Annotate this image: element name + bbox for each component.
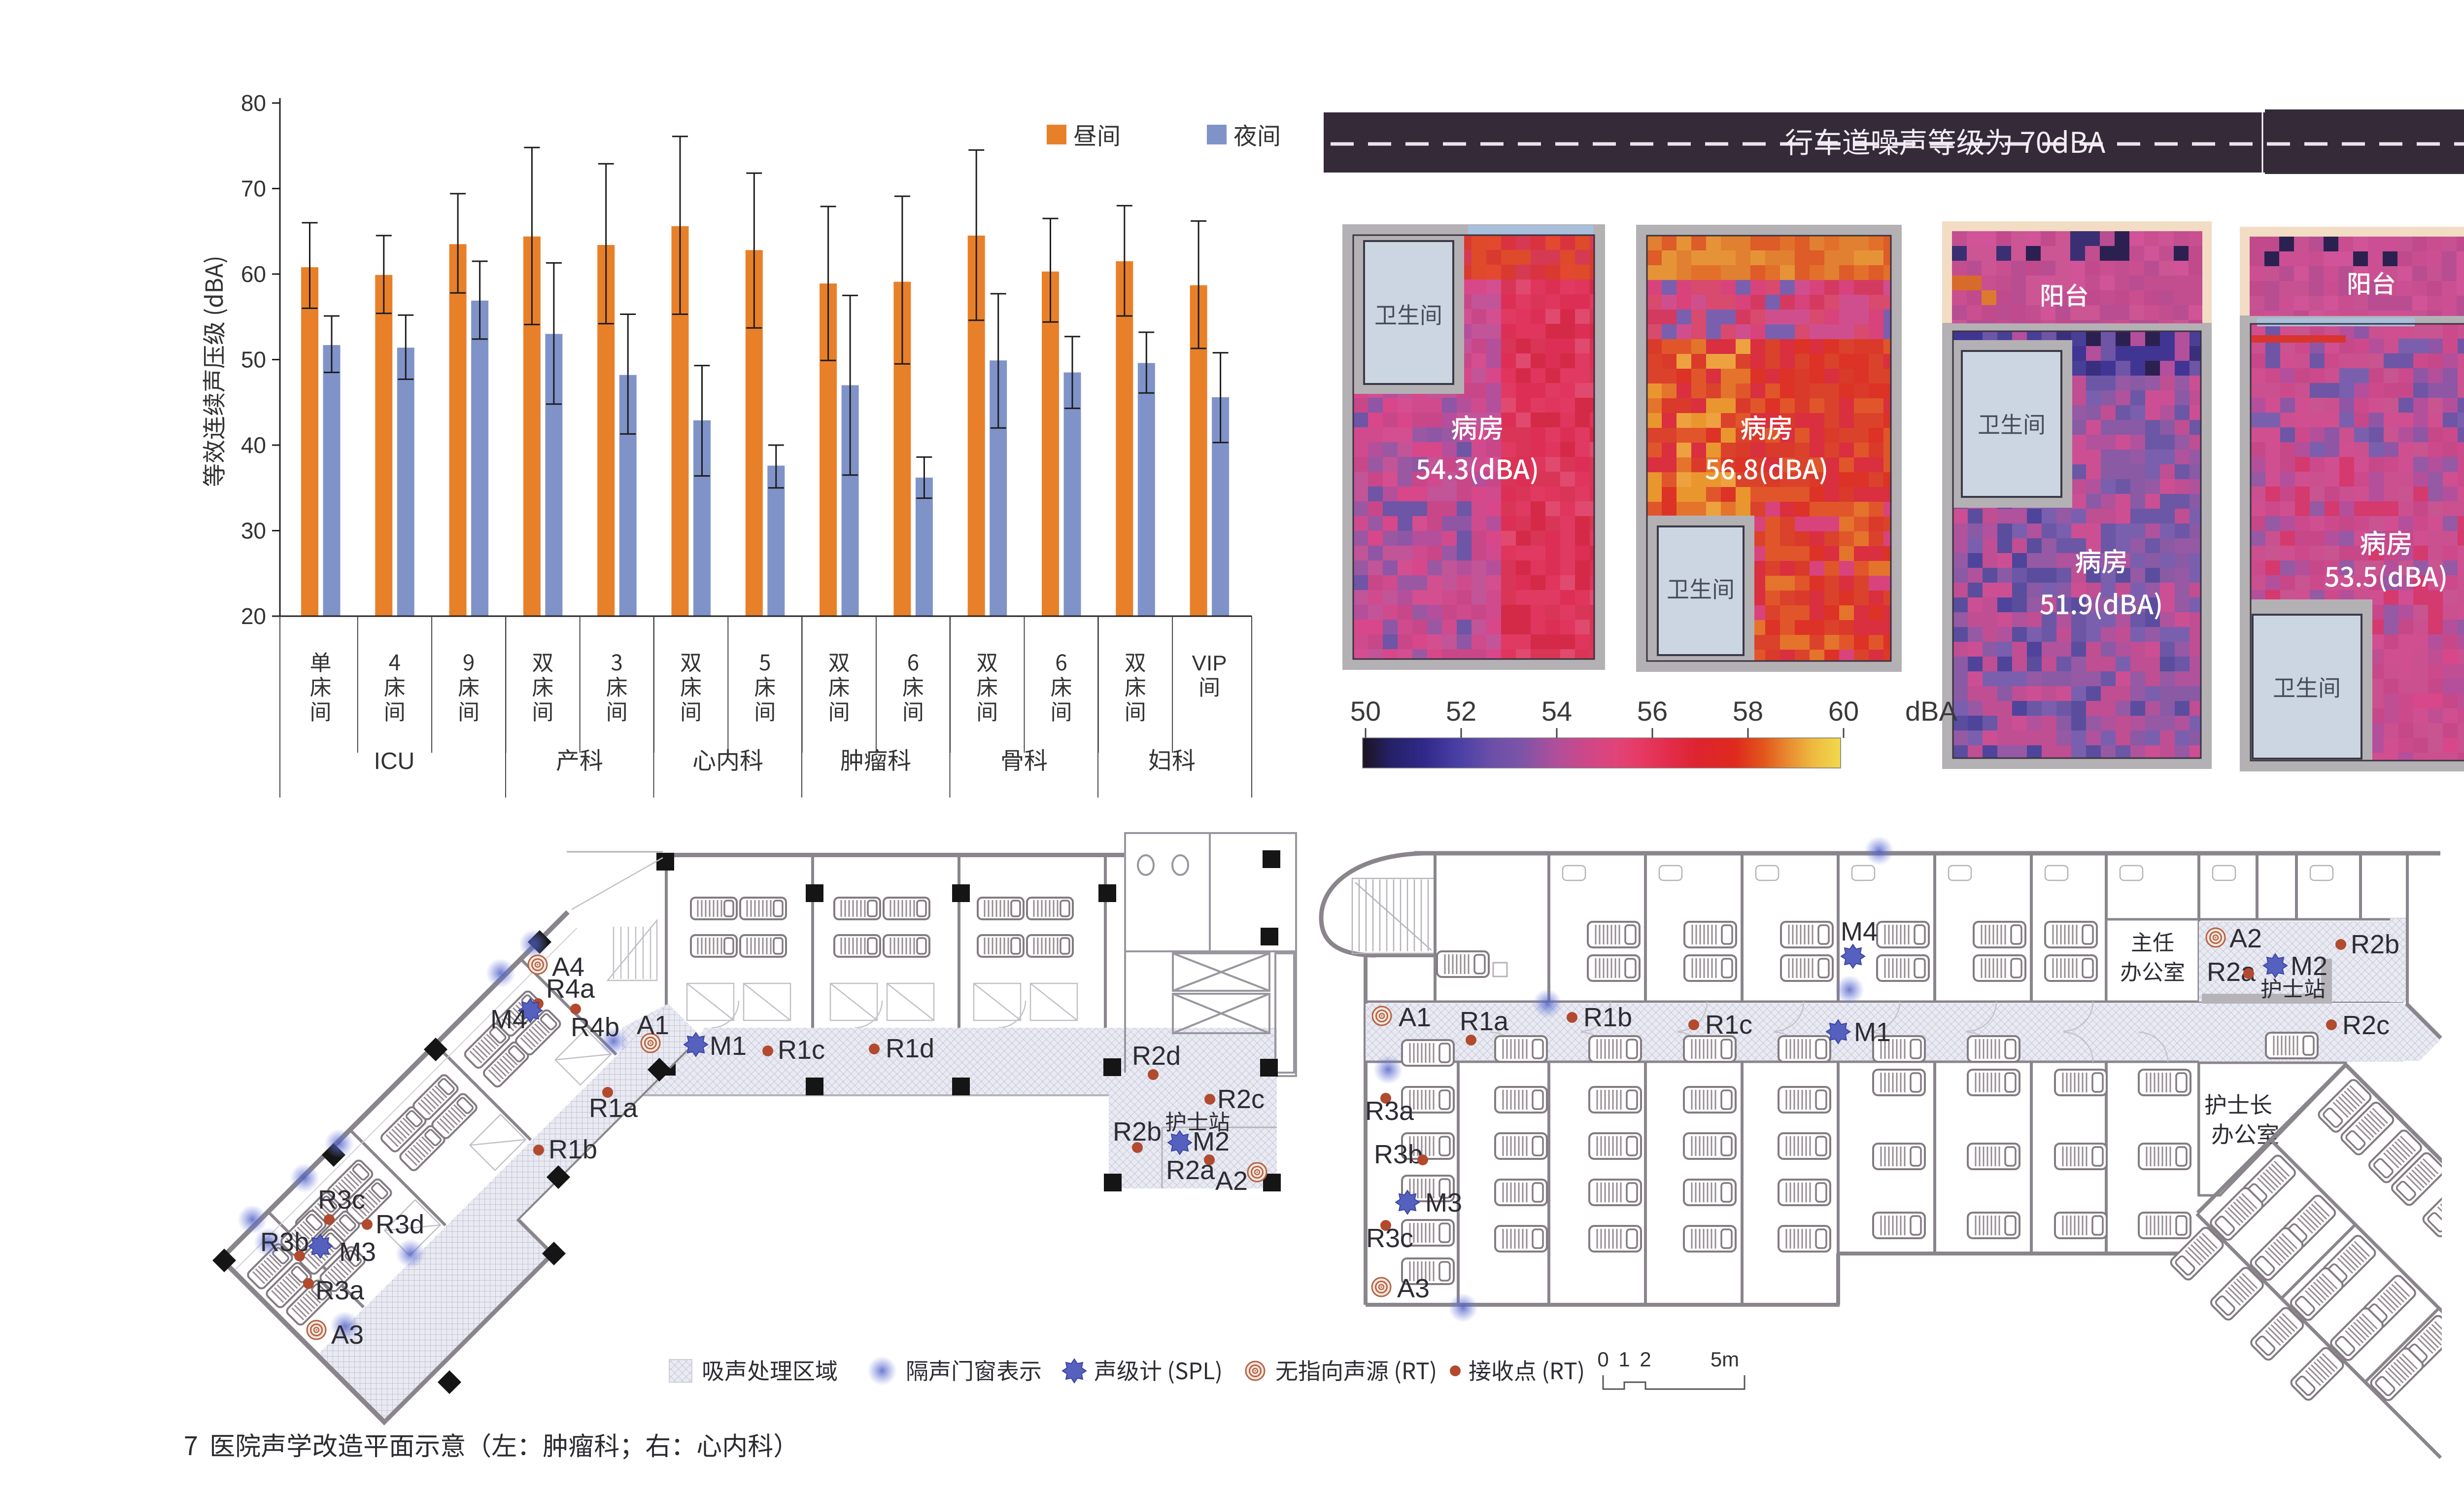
svg-text:dBA: dBA [1905, 696, 1957, 727]
svg-text:A2: A2 [1215, 1166, 1248, 1196]
svg-text:R1c: R1c [1705, 1010, 1752, 1040]
svg-text:80: 80 [241, 90, 266, 116]
svg-text:70: 70 [241, 176, 266, 202]
svg-text:52: 52 [1446, 696, 1476, 727]
svg-text:M3: M3 [339, 1237, 376, 1267]
svg-text:60: 60 [1828, 696, 1859, 727]
svg-text:R3c: R3c [318, 1185, 365, 1215]
svg-text:M2: M2 [1193, 1127, 1230, 1156]
svg-text:M1: M1 [1854, 1017, 1891, 1047]
svg-text:50: 50 [241, 347, 266, 373]
svg-text:R1a: R1a [1460, 1007, 1509, 1036]
svg-text:M2: M2 [2291, 951, 2327, 981]
svg-text:R2c: R2c [1217, 1084, 1265, 1114]
svg-text:M4: M4 [490, 1005, 527, 1034]
svg-text:R1c: R1c [778, 1035, 825, 1065]
svg-text:A3: A3 [331, 1320, 364, 1350]
svg-text:A2: A2 [2229, 924, 2262, 953]
svg-text:20: 20 [241, 603, 266, 629]
svg-text:R4b: R4b [571, 1012, 619, 1042]
svg-text:VIP: VIP [1192, 651, 1227, 675]
svg-text:60: 60 [241, 261, 266, 287]
svg-text:R2c: R2c [2342, 1011, 2390, 1040]
svg-text:R1d: R1d [886, 1034, 934, 1063]
svg-text:R3a: R3a [315, 1276, 365, 1305]
svg-text:30: 30 [241, 518, 266, 544]
svg-text:56: 56 [1637, 696, 1668, 727]
svg-text:0: 0 [1597, 1348, 1608, 1371]
svg-text:R3b: R3b [1374, 1140, 1423, 1169]
svg-text:R1b: R1b [1583, 1003, 1632, 1032]
svg-text:A1: A1 [637, 1011, 669, 1040]
svg-text:M4: M4 [1841, 917, 1878, 946]
svg-text:2: 2 [1640, 1348, 1651, 1371]
svg-text:R3c: R3c [1366, 1223, 1413, 1253]
svg-text:50: 50 [1350, 696, 1381, 727]
svg-text:M1: M1 [710, 1031, 747, 1061]
svg-text:R2b: R2b [1113, 1117, 1162, 1147]
svg-text:M3: M3 [1425, 1188, 1462, 1218]
svg-text:40: 40 [241, 432, 266, 458]
svg-text:R1a: R1a [589, 1093, 638, 1123]
svg-text:1: 1 [1618, 1348, 1630, 1371]
svg-text:R2d: R2d [1132, 1041, 1181, 1071]
svg-text:5m: 5m [1711, 1348, 1739, 1371]
svg-text:54: 54 [1541, 696, 1572, 727]
svg-text:58: 58 [1733, 696, 1763, 727]
svg-text:R3d: R3d [376, 1210, 424, 1239]
svg-text:R3a: R3a [1365, 1096, 1414, 1126]
svg-text:R4a: R4a [546, 974, 595, 1004]
svg-text:R2a: R2a [1166, 1155, 1215, 1185]
svg-text:R1b: R1b [548, 1135, 597, 1164]
svg-text:A1: A1 [1399, 1003, 1431, 1032]
svg-text:R2b: R2b [2351, 930, 2399, 959]
svg-text:ICU: ICU [374, 748, 415, 774]
svg-text:A3: A3 [1397, 1274, 1430, 1303]
